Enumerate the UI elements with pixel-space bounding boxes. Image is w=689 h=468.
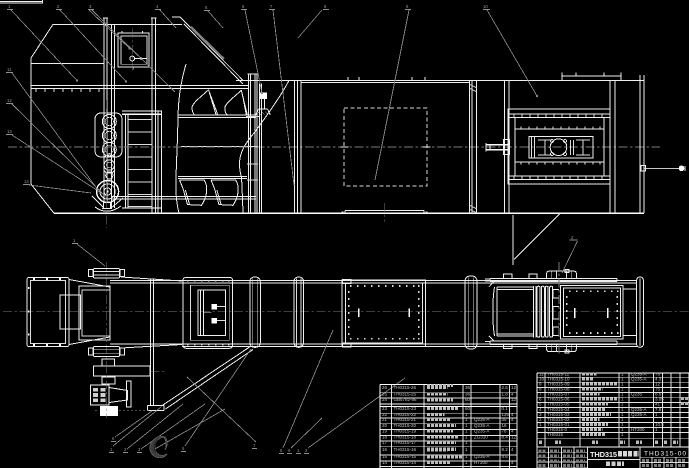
svg-text:36: 36 <box>465 392 471 397</box>
svg-text:8.4: 8.4 <box>502 434 509 439</box>
svg-text:9.2: 9.2 <box>502 447 509 452</box>
svg-text:14: 14 <box>382 460 388 465</box>
svg-text:24: 24 <box>382 397 388 402</box>
svg-text:2.5: 2.5 <box>502 385 509 390</box>
svg-text:TH0315-16: TH0315-16 <box>394 447 417 452</box>
svg-text:60: 60 <box>465 406 471 411</box>
svg-text:11: 11 <box>7 67 12 72</box>
svg-text:TH0315-21: TH0315-21 <box>394 417 417 422</box>
svg-text:10: 10 <box>483 4 488 9</box>
svg-text:36: 36 <box>465 385 471 390</box>
svg-text:15: 15 <box>382 454 388 459</box>
svg-text:Q235: Q235 <box>631 392 643 397</box>
svg-text:ZG310: ZG310 <box>474 434 488 439</box>
svg-text:16: 16 <box>382 447 388 452</box>
svg-text:HT200: HT200 <box>631 427 645 432</box>
svg-text:19: 19 <box>382 429 388 434</box>
svg-text:HT200: HT200 <box>474 460 488 465</box>
svg-text:12: 12 <box>511 385 517 390</box>
svg-text:THD315-00: THD315-00 <box>644 451 686 458</box>
svg-text:TH0315-15: TH0315-15 <box>394 454 417 459</box>
svg-text:35: 35 <box>502 417 508 422</box>
svg-text:Q235-A: Q235-A <box>474 417 490 422</box>
svg-text:Q235-A: Q235-A <box>474 454 490 459</box>
svg-text:20: 20 <box>382 423 388 428</box>
svg-text:17: 17 <box>382 440 388 445</box>
svg-text:TH0315-18: TH0315-18 <box>394 434 417 439</box>
svg-text:23: 23 <box>382 406 388 411</box>
svg-text:TH0315-20: TH0315-20 <box>394 423 417 428</box>
svg-text:4.6: 4.6 <box>502 454 509 459</box>
svg-text:TH0315-26: TH0315-26 <box>394 385 417 390</box>
svg-text:Q235-A: Q235-A <box>631 412 647 417</box>
svg-text:14: 14 <box>24 179 29 184</box>
svg-text:Q235-A: Q235-A <box>631 377 647 382</box>
svg-text:TH0315-25: TH0315-25 <box>394 392 417 397</box>
svg-text:TH0315-17: TH0315-17 <box>394 440 417 445</box>
svg-text:1.8: 1.8 <box>502 392 509 397</box>
svg-text:TH0315: TH0315 <box>547 432 564 437</box>
svg-text:12: 12 <box>511 397 517 402</box>
svg-text:18: 18 <box>382 434 388 439</box>
svg-text:Q235-A: Q235-A <box>474 429 490 434</box>
svg-text:TH0315-23: TH0315-23 <box>394 406 417 411</box>
svg-text:25: 25 <box>382 392 388 397</box>
svg-text:0.1: 0.1 <box>502 406 509 411</box>
svg-text:THD315: THD315 <box>590 450 617 459</box>
svg-text:60: 60 <box>465 397 471 402</box>
svg-text:16: 16 <box>502 423 508 428</box>
svg-text:TH0315-19: TH0315-19 <box>394 429 417 434</box>
svg-text:TH0315-14: TH0315-14 <box>394 460 417 465</box>
svg-text:12: 12 <box>511 434 517 439</box>
svg-text:Q235-A: Q235-A <box>474 423 490 428</box>
svg-text:21: 21 <box>382 417 388 422</box>
svg-text:12: 12 <box>7 98 12 103</box>
svg-text:78: 78 <box>502 429 508 434</box>
svg-text:26: 26 <box>382 385 388 390</box>
svg-text:13: 13 <box>7 129 12 134</box>
svg-text:GB5782-86: GB5782-86 <box>394 397 418 402</box>
